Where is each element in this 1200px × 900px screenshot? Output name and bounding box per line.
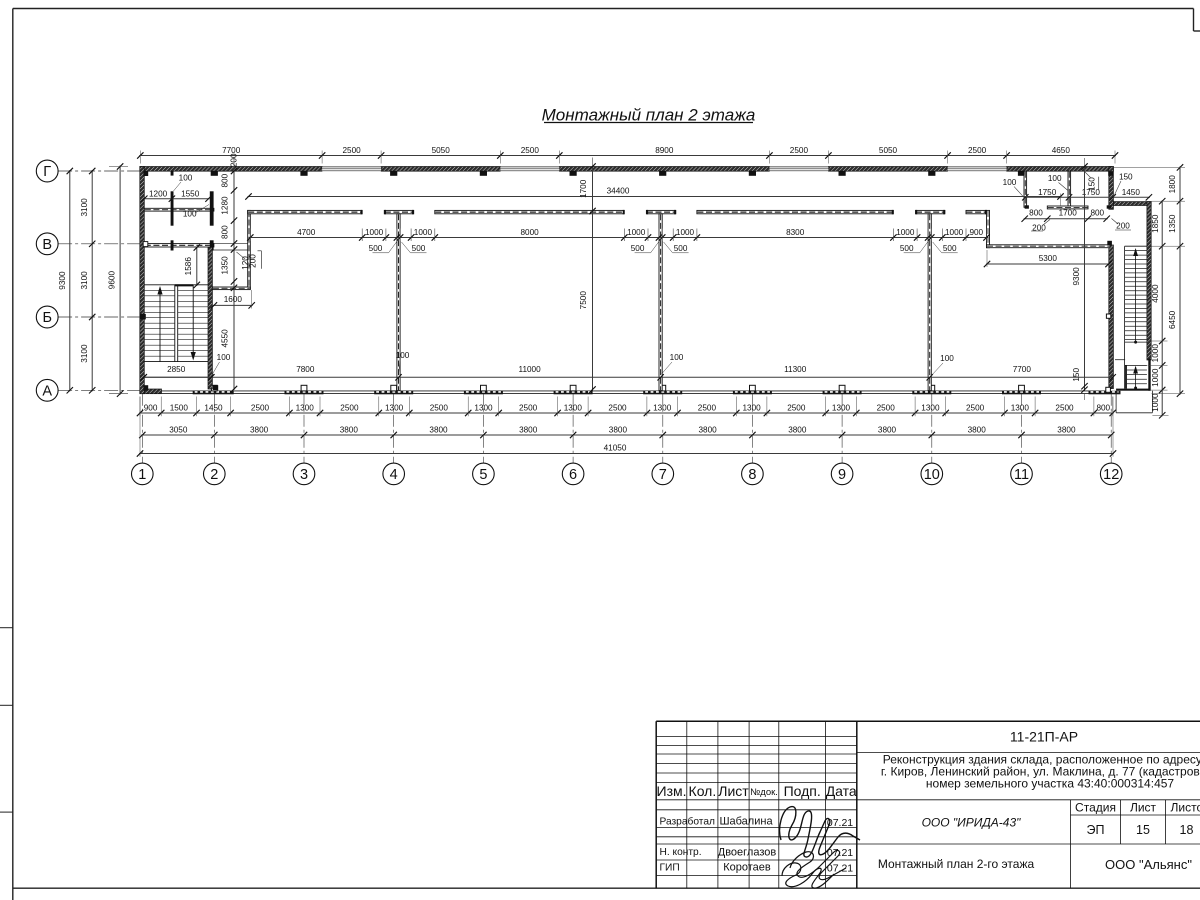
svg-text:Коротаев: Коротаев bbox=[723, 862, 771, 874]
svg-text:8: 8 bbox=[748, 467, 756, 483]
svg-text:1600: 1600 bbox=[224, 295, 243, 304]
svg-text:2500: 2500 bbox=[1055, 403, 1074, 412]
svg-text:2500: 2500 bbox=[340, 403, 359, 412]
svg-text:3100: 3100 bbox=[80, 271, 89, 290]
svg-text:11-21П-АР: 11-21П-АР bbox=[1010, 729, 1078, 745]
svg-text:Монтажный план 2 этажа: Монтажный план 2 этажа bbox=[542, 105, 756, 124]
svg-text:150: 150 bbox=[1087, 177, 1096, 191]
svg-text:1586: 1586 bbox=[184, 257, 193, 276]
svg-text:1700: 1700 bbox=[579, 179, 588, 198]
svg-text:4: 4 bbox=[390, 467, 398, 483]
svg-text:1000: 1000 bbox=[414, 228, 433, 237]
svg-text:18: 18 bbox=[1180, 823, 1194, 837]
svg-text:800: 800 bbox=[1029, 208, 1043, 217]
svg-text:Изм.: Изм. bbox=[657, 783, 687, 799]
svg-text:11000: 11000 bbox=[519, 365, 542, 374]
svg-text:Лист: Лист bbox=[1130, 801, 1157, 815]
svg-text:4700: 4700 bbox=[297, 228, 316, 237]
svg-text:34400: 34400 bbox=[607, 186, 630, 195]
svg-text:07.21: 07.21 bbox=[827, 863, 853, 875]
svg-text:3800: 3800 bbox=[968, 425, 987, 434]
svg-text:41050: 41050 bbox=[604, 443, 627, 452]
svg-text:200: 200 bbox=[249, 254, 258, 268]
svg-text:4550: 4550 bbox=[221, 329, 230, 348]
svg-text:1000: 1000 bbox=[1151, 393, 1160, 412]
svg-text:100: 100 bbox=[179, 174, 193, 183]
svg-text:3800: 3800 bbox=[250, 425, 269, 434]
svg-text:5050: 5050 bbox=[432, 146, 451, 155]
svg-text:3800: 3800 bbox=[788, 425, 807, 434]
svg-text:800: 800 bbox=[1090, 208, 1104, 217]
svg-text:1300: 1300 bbox=[385, 403, 404, 412]
svg-text:7800: 7800 bbox=[296, 365, 315, 374]
svg-text:6450: 6450 bbox=[1168, 310, 1177, 329]
svg-text:500: 500 bbox=[674, 244, 688, 253]
svg-text:5: 5 bbox=[479, 467, 487, 483]
svg-text:9: 9 bbox=[838, 467, 846, 483]
svg-text:1300: 1300 bbox=[474, 403, 493, 412]
svg-text:Шабалина: Шабалина bbox=[719, 816, 773, 828]
svg-text:ЭП: ЭП bbox=[1087, 823, 1105, 837]
svg-text:1850: 1850 bbox=[1151, 214, 1160, 233]
svg-text:500: 500 bbox=[943, 244, 957, 253]
svg-text:1200: 1200 bbox=[149, 189, 168, 198]
svg-text:номер земельного участка 43:40: номер земельного участка 43:40:000314:45… bbox=[926, 777, 1175, 791]
svg-text:1300: 1300 bbox=[296, 403, 315, 412]
svg-text:5300: 5300 bbox=[1039, 254, 1058, 263]
svg-text:500: 500 bbox=[412, 244, 426, 253]
svg-text:А: А bbox=[42, 384, 52, 400]
svg-text:3100: 3100 bbox=[80, 198, 89, 217]
svg-text:11: 11 bbox=[1014, 467, 1029, 483]
svg-text:7: 7 bbox=[659, 467, 667, 483]
svg-text:100: 100 bbox=[1003, 178, 1017, 187]
svg-text:7500: 7500 bbox=[579, 291, 588, 310]
svg-text:3800: 3800 bbox=[698, 425, 717, 434]
svg-text:1000: 1000 bbox=[1151, 368, 1160, 387]
svg-text:2500: 2500 bbox=[787, 403, 806, 412]
svg-text:2500: 2500 bbox=[966, 403, 985, 412]
svg-text:ООО "ИРИДА-43": ООО "ИРИДА-43" bbox=[922, 816, 1022, 830]
svg-text:11300: 11300 bbox=[784, 365, 807, 374]
svg-text:8000: 8000 bbox=[520, 228, 539, 237]
svg-text:2: 2 bbox=[210, 467, 218, 483]
svg-text:1000: 1000 bbox=[945, 228, 964, 237]
svg-text:800: 800 bbox=[221, 225, 230, 239]
svg-text:7700: 7700 bbox=[1013, 365, 1032, 374]
svg-text:1300: 1300 bbox=[742, 403, 761, 412]
svg-text:№док.: №док. bbox=[750, 787, 778, 798]
svg-text:2500: 2500 bbox=[608, 403, 627, 412]
svg-text:2500: 2500 bbox=[430, 403, 449, 412]
svg-text:1000: 1000 bbox=[896, 228, 915, 237]
svg-text:2500: 2500 bbox=[968, 146, 987, 155]
svg-text:Монтажный план 2-го этажа: Монтажный план 2-го этажа bbox=[878, 857, 1035, 871]
svg-text:3800: 3800 bbox=[1057, 425, 1076, 434]
svg-text:ООО "Альянс": ООО "Альянс" bbox=[1105, 857, 1192, 872]
svg-text:Листов: Листов bbox=[1171, 801, 1200, 815]
svg-text:9300: 9300 bbox=[1072, 267, 1081, 286]
svg-text:200: 200 bbox=[1116, 222, 1130, 231]
svg-text:Кол.: Кол. bbox=[689, 783, 717, 799]
svg-text:1550: 1550 bbox=[181, 189, 200, 198]
svg-text:500: 500 bbox=[631, 244, 645, 253]
svg-text:2500: 2500 bbox=[519, 403, 538, 412]
svg-text:10: 10 bbox=[924, 467, 940, 483]
svg-text:100: 100 bbox=[217, 353, 231, 362]
svg-text:В: В bbox=[42, 237, 52, 253]
svg-text:900: 900 bbox=[144, 403, 158, 412]
svg-text:Двоеглазов: Двоеглазов bbox=[718, 847, 777, 859]
svg-text:3: 3 bbox=[300, 467, 308, 483]
svg-text:Стадия: Стадия bbox=[1075, 801, 1116, 815]
svg-text:1300: 1300 bbox=[832, 403, 851, 412]
svg-text:Подп.: Подп. bbox=[784, 783, 821, 799]
svg-text:4000: 4000 bbox=[1151, 284, 1160, 303]
svg-text:2500: 2500 bbox=[251, 403, 270, 412]
svg-text:100: 100 bbox=[940, 354, 954, 363]
svg-text:12: 12 bbox=[1103, 467, 1119, 483]
svg-text:2500: 2500 bbox=[698, 403, 717, 412]
svg-text:Разработал: Разработал bbox=[660, 816, 716, 828]
svg-text:100: 100 bbox=[670, 353, 684, 362]
svg-text:1350: 1350 bbox=[1168, 214, 1177, 233]
svg-text:Н. контр.: Н. контр. bbox=[660, 847, 702, 858]
svg-text:Дата: Дата bbox=[826, 783, 857, 799]
svg-text:3800: 3800 bbox=[609, 425, 628, 434]
svg-text:5050: 5050 bbox=[879, 146, 898, 155]
svg-text:1000: 1000 bbox=[365, 228, 384, 237]
svg-text:100: 100 bbox=[183, 210, 197, 219]
svg-text:3800: 3800 bbox=[429, 425, 448, 434]
svg-text:2500: 2500 bbox=[877, 403, 896, 412]
svg-text:3800: 3800 bbox=[878, 425, 897, 434]
svg-text:1300: 1300 bbox=[653, 403, 672, 412]
svg-text:15: 15 bbox=[1136, 823, 1150, 837]
svg-text:ГИП: ГИП bbox=[660, 863, 680, 874]
svg-text:500: 500 bbox=[369, 244, 383, 253]
svg-text:1300: 1300 bbox=[564, 403, 583, 412]
svg-text:1: 1 bbox=[138, 467, 146, 483]
svg-text:1500: 1500 bbox=[170, 403, 189, 412]
svg-text:2500: 2500 bbox=[790, 146, 809, 155]
svg-text:1000: 1000 bbox=[627, 228, 646, 237]
svg-text:1000: 1000 bbox=[1151, 344, 1160, 363]
svg-text:2850: 2850 bbox=[167, 365, 186, 374]
svg-text:1800: 1800 bbox=[1168, 175, 1177, 194]
svg-text:100: 100 bbox=[1048, 174, 1062, 183]
svg-text:100: 100 bbox=[396, 351, 410, 360]
svg-text:9300: 9300 bbox=[58, 271, 67, 290]
svg-text:1450: 1450 bbox=[204, 403, 223, 412]
svg-text:Г: Г bbox=[43, 164, 51, 180]
svg-text:1300: 1300 bbox=[1011, 403, 1030, 412]
svg-text:8900: 8900 bbox=[655, 146, 674, 155]
svg-text:Б: Б bbox=[42, 310, 52, 326]
svg-text:1350: 1350 bbox=[221, 256, 230, 275]
svg-text:2500: 2500 bbox=[342, 146, 361, 155]
svg-text:8300: 8300 bbox=[786, 228, 805, 237]
svg-text:900: 900 bbox=[969, 228, 983, 237]
svg-text:2500: 2500 bbox=[521, 146, 540, 155]
svg-text:Лист: Лист bbox=[718, 783, 749, 799]
svg-text:1000: 1000 bbox=[676, 228, 695, 237]
svg-text:3800: 3800 bbox=[340, 425, 359, 434]
svg-text:3800: 3800 bbox=[519, 425, 538, 434]
svg-text:07.21: 07.21 bbox=[827, 817, 853, 829]
svg-text:3050: 3050 bbox=[169, 425, 188, 434]
svg-text:1300: 1300 bbox=[921, 403, 940, 412]
svg-text:800: 800 bbox=[221, 173, 230, 187]
svg-text:1750: 1750 bbox=[1038, 188, 1057, 197]
svg-text:9600: 9600 bbox=[107, 271, 116, 290]
svg-text:800: 800 bbox=[1096, 403, 1110, 412]
svg-text:3100: 3100 bbox=[80, 344, 89, 363]
svg-text:150: 150 bbox=[1072, 368, 1081, 382]
svg-text:4650: 4650 bbox=[1052, 146, 1071, 155]
svg-text:500: 500 bbox=[900, 244, 914, 253]
svg-text:6: 6 bbox=[569, 467, 577, 483]
svg-text:1280: 1280 bbox=[221, 196, 230, 215]
svg-text:150: 150 bbox=[1119, 172, 1133, 181]
svg-text:1450: 1450 bbox=[1122, 188, 1141, 197]
svg-text:1700: 1700 bbox=[1059, 208, 1078, 217]
